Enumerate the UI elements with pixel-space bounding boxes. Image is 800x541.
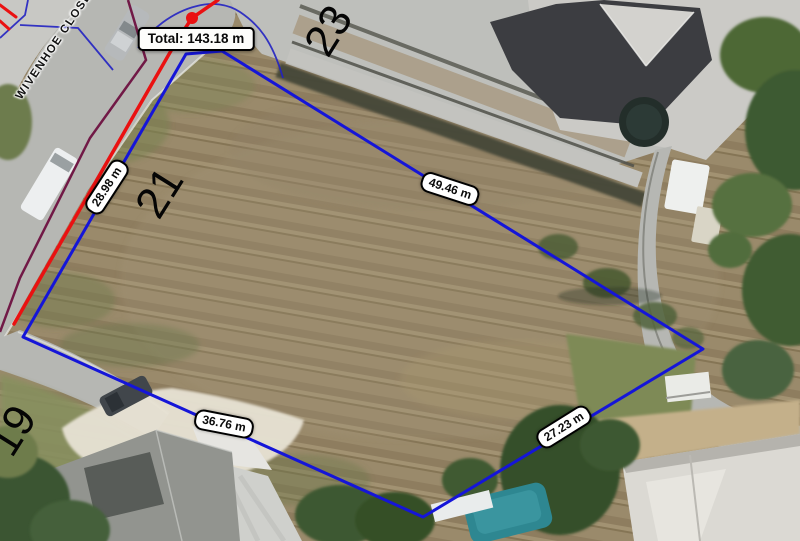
- total-measurement-tooltip: Total: 143.18 m: [138, 27, 255, 51]
- aerial-imagery: [0, 0, 800, 541]
- aerial-map[interactable]: WIVENHOE CLOSE 21 23 19 28.98 m 49.46 m …: [0, 0, 800, 541]
- measure-vertex-marker[interactable]: [186, 12, 198, 24]
